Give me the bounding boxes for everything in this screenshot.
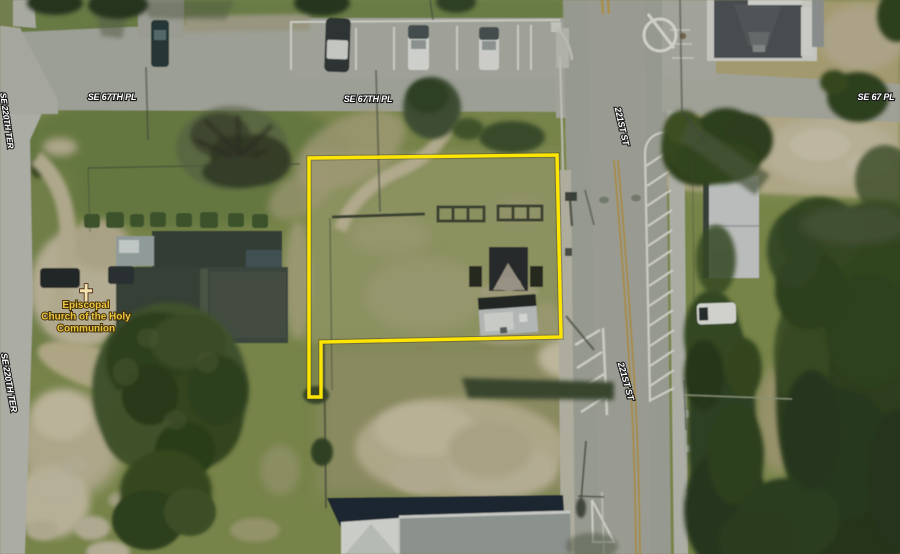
svg-text:Church of the Holy: Church of the Holy <box>41 312 131 323</box>
svg-text:Episcopal: Episcopal <box>62 300 109 311</box>
svg-text:Communion: Communion <box>57 324 115 335</box>
svg-text:SE 67TH PL: SE 67TH PL <box>88 92 137 102</box>
svg-text:SE 67 PL: SE 67 PL <box>858 92 895 102</box>
svg-text:SE 67TH PL: SE 67TH PL <box>344 94 393 104</box>
